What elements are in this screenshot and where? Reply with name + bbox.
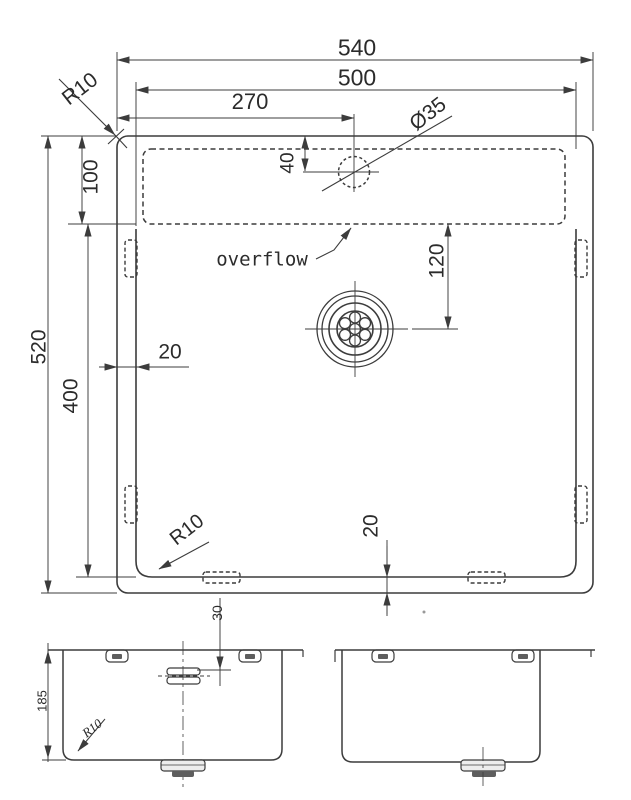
dim-drain-from-overflow: 120 xyxy=(427,243,448,278)
rim-clip xyxy=(106,650,128,662)
drain-fitting xyxy=(161,760,205,777)
overflow-leader-line xyxy=(316,228,351,259)
drain-strainer xyxy=(305,281,408,377)
overflow-label: overflow xyxy=(216,251,308,270)
rim-clip xyxy=(372,650,394,662)
side-view-linework xyxy=(335,611,595,790)
dim-bowl-inner-height: 185 xyxy=(36,690,49,712)
front-view-linework xyxy=(42,598,303,788)
dim-overall-depth: 520 xyxy=(29,329,50,364)
top-view-linework xyxy=(41,52,593,616)
stray-mark xyxy=(423,611,426,614)
dim-overall-width: 540 xyxy=(338,37,376,60)
dim-side-rim-width: 20 xyxy=(158,342,181,363)
sink-technical-drawing: 540 500 270 R10 Ø35 100 40 overflow 120 … xyxy=(0,0,631,800)
dim-bottom-rim-width: 20 xyxy=(361,514,382,537)
rim-clip xyxy=(239,650,261,662)
drawing-linework xyxy=(0,0,631,800)
dim-overflow-from-rim: 30 xyxy=(210,605,224,621)
dim-faucet-offset: 270 xyxy=(232,91,269,113)
dim-faucet-from-rim: 40 xyxy=(279,152,298,173)
diameter-leader-line xyxy=(322,116,452,191)
dim-bowl-width: 500 xyxy=(338,67,376,90)
dim-deck-depth: 100 xyxy=(81,159,102,194)
rim-clip xyxy=(512,650,534,662)
bowl-section-outline xyxy=(63,650,282,760)
bowl-section-outline xyxy=(342,650,540,762)
dim-bowl-depth: 400 xyxy=(61,378,82,413)
